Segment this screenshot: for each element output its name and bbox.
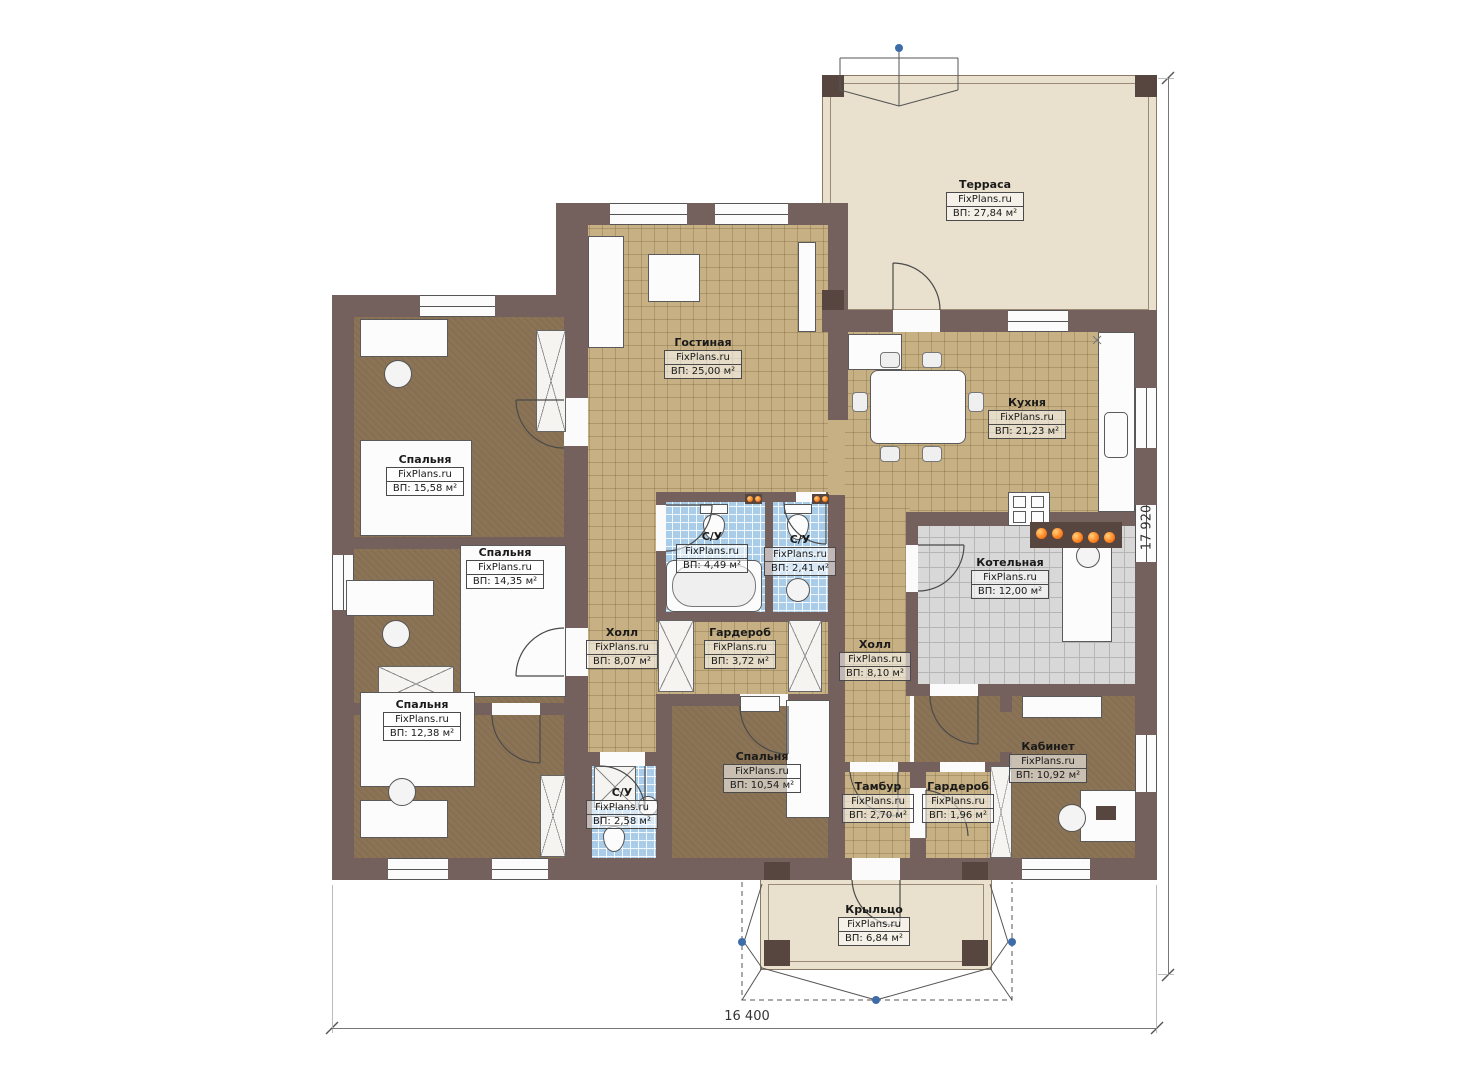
- cooktop-grate: [1031, 496, 1044, 508]
- room-name: Кухня: [967, 396, 1087, 409]
- dining-chair: [880, 352, 900, 368]
- room-name: Холл: [815, 638, 935, 651]
- door-opening: [492, 703, 540, 715]
- extension-line: [1158, 974, 1174, 975]
- burner-dot: [1052, 528, 1063, 539]
- room-area: ВП: 8,07 м²: [587, 654, 657, 668]
- door-opening: [600, 752, 645, 766]
- room-label-wardrobe-1: Гардероб FixPlans.ru ВП: 3,72 м²: [680, 626, 800, 669]
- wall: [656, 694, 672, 866]
- room-area: ВП: 21,23 м²: [989, 424, 1065, 438]
- terrace-post: [822, 75, 844, 97]
- room-name: С/У: [740, 533, 860, 546]
- computer: [1096, 806, 1116, 820]
- sink: [786, 578, 810, 602]
- stair-marker-dot: [872, 996, 880, 1004]
- room-label-bedroom-4: Спальня FixPlans.ru ВП: 10,54 м²: [702, 750, 822, 793]
- room-name: Спальня: [362, 698, 482, 711]
- room-area: ВП: 10,92 м²: [1010, 768, 1086, 782]
- room-label-hall-2: Холл FixPlans.ru ВП: 8,10 м²: [815, 638, 935, 681]
- heater-dot: [755, 496, 761, 502]
- room-area: ВП: 14,35 м²: [467, 574, 543, 588]
- dimension-height-label: 17 920: [1139, 505, 1154, 551]
- heater-dot: [747, 496, 753, 502]
- dimension-line-bottom: [332, 1028, 1157, 1029]
- dining-table: [870, 370, 966, 444]
- room-area: ВП: 4,49 м²: [677, 558, 747, 572]
- window: [1022, 858, 1090, 880]
- stair-marker-dot: [895, 44, 903, 52]
- window: [492, 858, 548, 880]
- dimension-line-right: [1168, 78, 1169, 975]
- room-label-wardrobe-2: Гардероб FixPlans.ru ВП: 1,96 м²: [898, 780, 1018, 823]
- room-info-box: FixPlans.ru ВП: 12,38 м²: [383, 712, 461, 741]
- room-area: ВП: 3,72 м²: [705, 654, 775, 668]
- room-name: Спальня: [445, 546, 565, 559]
- room-brand: FixPlans.ru: [923, 795, 993, 808]
- room-info-box: FixPlans.ru ВП: 27,84 м²: [946, 192, 1024, 221]
- room-label-terrace: Терраса FixPlans.ru ВП: 27,84 м²: [925, 178, 1045, 221]
- room-info-box: FixPlans.ru ВП: 2,41 м²: [764, 547, 836, 576]
- room-name: Гардероб: [680, 626, 800, 639]
- room-info-box: FixPlans.ru ВП: 8,07 м²: [586, 640, 658, 669]
- room-label-living: Гостиная FixPlans.ru ВП: 25,00 м²: [643, 336, 763, 379]
- room-label-porch: Крыльцо FixPlans.ru ВП: 6,84 м²: [814, 903, 934, 946]
- wall-opening: [828, 420, 845, 495]
- wall: [556, 203, 845, 225]
- room-info-box: FixPlans.ru ВП: 12,00 м²: [971, 570, 1049, 599]
- room-name: Гостиная: [643, 336, 763, 349]
- room-area: ВП: 12,38 м²: [384, 726, 460, 740]
- door-opening: [940, 762, 985, 772]
- room-brand: FixPlans.ru: [972, 571, 1048, 584]
- room-name: Котельная: [950, 556, 1070, 569]
- room-name: Крыльцо: [814, 903, 934, 916]
- room-area: ВП: 15,58 м²: [387, 481, 463, 495]
- heater-dot: [814, 496, 820, 502]
- room-label-hall-1: Холл FixPlans.ru ВП: 8,07 м²: [562, 626, 682, 669]
- extension-line: [1156, 885, 1157, 1033]
- room-name: Спальня: [702, 750, 822, 763]
- room-info-box: FixPlans.ru ВП: 1,96 м²: [922, 794, 994, 823]
- room-area: ВП: 8,10 м²: [840, 666, 910, 680]
- room-name: Холл: [562, 626, 682, 639]
- room-brand: FixPlans.ru: [677, 545, 747, 558]
- window: [715, 203, 788, 225]
- room-label-boiler: Котельная FixPlans.ru ВП: 12,00 м²: [950, 556, 1070, 599]
- window: [388, 858, 448, 880]
- room-brand: FixPlans.ru: [840, 653, 910, 666]
- porch-post: [962, 862, 988, 880]
- window: [610, 203, 687, 225]
- dining-chair: [852, 392, 868, 412]
- room-label-kitchen: Кухня FixPlans.ru ВП: 21,23 м²: [967, 396, 1087, 439]
- room-brand: FixPlans.ru: [665, 351, 741, 364]
- room-name: С/У: [562, 786, 682, 799]
- room-area: ВП: 1,96 м²: [923, 808, 993, 822]
- window: [1135, 388, 1157, 448]
- room-info-box: FixPlans.ru ВП: 10,92 м²: [1009, 754, 1087, 783]
- room-name: Терраса: [925, 178, 1045, 191]
- room-brand: FixPlans.ru: [839, 918, 909, 931]
- dining-chair: [880, 446, 900, 462]
- window: [1008, 310, 1068, 332]
- room-brand: FixPlans.ru: [989, 411, 1065, 424]
- room-info-box: FixPlans.ru ВП: 3,72 м²: [704, 640, 776, 669]
- room-info-box: FixPlans.ru ВП: 2,58 м²: [586, 800, 658, 829]
- room-info-box: FixPlans.ru ВП: 14,35 м²: [466, 560, 544, 589]
- stair-marker-dot: [738, 938, 746, 946]
- door-opening: [852, 858, 900, 880]
- burner-dot: [1104, 532, 1115, 543]
- room-label-bathroom-3: С/У FixPlans.ru ВП: 2,58 м²: [562, 786, 682, 829]
- room-info-box: FixPlans.ru ВП: 8,10 м²: [839, 652, 911, 681]
- room-area: ВП: 2,58 м²: [587, 814, 657, 828]
- wardrobe-unit: [536, 330, 566, 432]
- room-brand: FixPlans.ru: [765, 548, 835, 561]
- room-brand: FixPlans.ru: [947, 193, 1023, 206]
- window: [420, 295, 495, 317]
- room-area: ВП: 27,84 м²: [947, 206, 1023, 220]
- desk-chair: [382, 620, 410, 648]
- room-area: ВП: 12,00 м²: [972, 584, 1048, 598]
- room-brand: FixPlans.ru: [387, 468, 463, 481]
- porch-post: [962, 940, 988, 966]
- porch-post: [764, 940, 790, 966]
- toilet: [784, 504, 812, 514]
- window: [1135, 735, 1157, 792]
- toilet: [700, 504, 728, 514]
- cooktop-grate: [1013, 496, 1026, 508]
- burner-dot: [1036, 528, 1047, 539]
- room-brand: FixPlans.ru: [587, 801, 657, 814]
- room-area: ВП: 10,54 м²: [724, 778, 800, 792]
- cooktop-grate: [1013, 511, 1026, 523]
- stair-marker-dot: [1008, 938, 1016, 946]
- floor-plan: 17 920 16 400 Терраса FixPlans.ru ВП: 27…: [0, 0, 1474, 1080]
- room-info-box: FixPlans.ru ВП: 6,84 м²: [838, 917, 910, 946]
- desk-chair: [384, 360, 412, 388]
- room-info-box: FixPlans.ru ВП: 25,00 м²: [664, 350, 742, 379]
- room-info-box: FixPlans.ru ВП: 4,49 м²: [676, 544, 748, 573]
- desk: [360, 319, 448, 357]
- room-brand: FixPlans.ru: [705, 641, 775, 654]
- dining-chair: [922, 352, 942, 368]
- wall: [1000, 692, 1012, 712]
- room-name: Кабинет: [988, 740, 1108, 753]
- room-info-box: FixPlans.ru ВП: 10,54 м²: [723, 764, 801, 793]
- extension-line: [332, 885, 333, 1033]
- dresser: [346, 580, 434, 616]
- room-label-bedroom-1: Спальня FixPlans.ru ВП: 15,58 м²: [365, 453, 485, 496]
- heater-dot: [822, 496, 828, 502]
- door-opening: [850, 762, 898, 772]
- door-opening: [930, 684, 978, 696]
- room-brand: FixPlans.ru: [587, 641, 657, 654]
- room-area: ВП: 6,84 м²: [839, 931, 909, 945]
- terrace-post: [1135, 75, 1157, 97]
- room-area: ВП: 25,00 м²: [665, 364, 741, 378]
- kitchen-sink: [1104, 412, 1128, 458]
- room-label-bedroom-2: Спальня FixPlans.ru ВП: 14,35 м²: [445, 546, 565, 589]
- office-chair: [1058, 804, 1086, 832]
- coffee-table: [648, 254, 700, 302]
- tv-stand: [798, 242, 816, 332]
- dimension-width-label: 16 400: [702, 1009, 792, 1024]
- burner-dot: [1072, 532, 1083, 543]
- door-opening: [906, 545, 918, 592]
- room-label-office: Кабинет FixPlans.ru ВП: 10,92 м²: [988, 740, 1108, 783]
- room-info-box: FixPlans.ru ВП: 21,23 м²: [988, 410, 1066, 439]
- room-brand: FixPlans.ru: [384, 713, 460, 726]
- sofa: [588, 236, 624, 348]
- door-opening: [564, 398, 588, 446]
- burner-dot: [1088, 532, 1099, 543]
- room-brand: FixPlans.ru: [724, 765, 800, 778]
- extension-line: [1158, 78, 1174, 79]
- dining-chair: [922, 446, 942, 462]
- door-opening: [893, 310, 940, 332]
- desk-chair: [388, 778, 416, 806]
- wall: [822, 310, 1157, 332]
- room-label-bathroom-2: С/У FixPlans.ru ВП: 2,41 м²: [740, 533, 860, 576]
- porch-post: [764, 862, 790, 880]
- room-name: Спальня: [365, 453, 485, 466]
- room-brand: FixPlans.ru: [467, 561, 543, 574]
- room-info-box: FixPlans.ru ВП: 15,58 м²: [386, 467, 464, 496]
- dresser: [740, 696, 780, 712]
- room-area: ВП: 2,41 м²: [765, 561, 835, 575]
- room-label-bedroom-3: Спальня FixPlans.ru ВП: 12,38 м²: [362, 698, 482, 741]
- terrace-post: [822, 290, 844, 310]
- room-brand: FixPlans.ru: [1010, 755, 1086, 768]
- office-sofa: [1022, 696, 1102, 718]
